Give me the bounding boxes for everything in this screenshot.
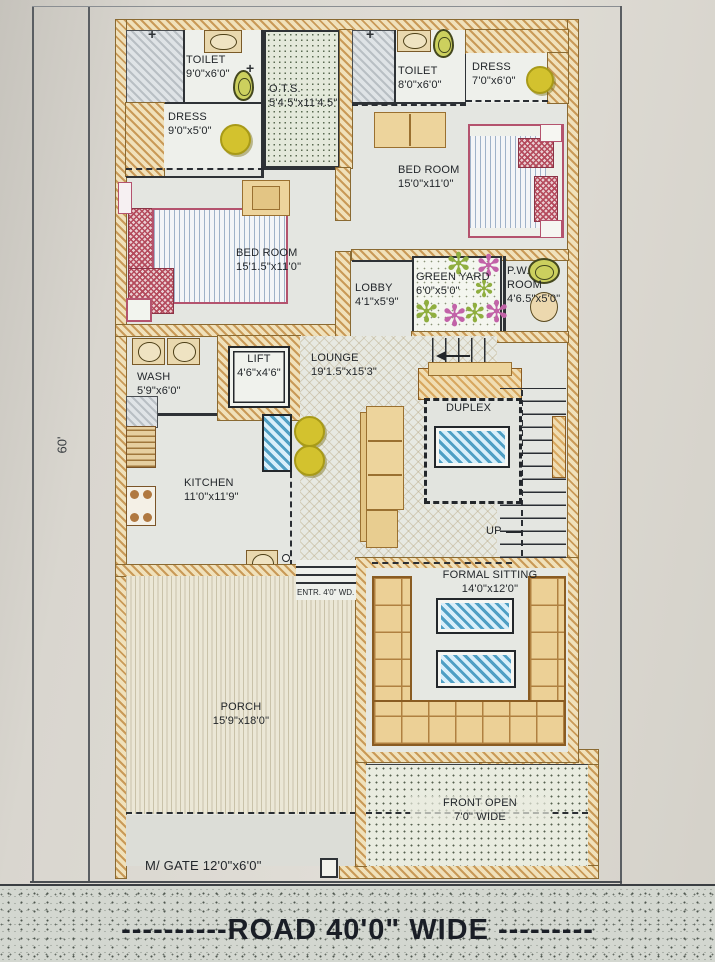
pw-room-label: P.W. ROOM 4'6.5"x5'0" bbox=[507, 264, 555, 306]
room-name: BED ROOM bbox=[398, 163, 460, 177]
ots-label: O.T.S. 5'4.5"x11'4.5" bbox=[269, 82, 337, 110]
washbasin-icon bbox=[397, 30, 431, 52]
bed-pillow bbox=[518, 138, 554, 168]
lift-label: LIFT 4'6"x4'6" bbox=[228, 352, 290, 380]
room-size: 8'0"x6'0" bbox=[398, 78, 442, 92]
room-size: 9'0"x5'0" bbox=[168, 124, 212, 138]
sofa-cushion-line bbox=[368, 474, 402, 476]
stool-icon bbox=[526, 66, 554, 94]
room-name: KITCHEN bbox=[184, 476, 239, 490]
sink-bowl bbox=[138, 342, 161, 362]
room-size: 19'1.5"x15'3" bbox=[311, 365, 377, 379]
room-size: 7'0"x6'0" bbox=[472, 74, 516, 88]
burner bbox=[130, 513, 139, 522]
room-name: FORMAL SITTING bbox=[420, 568, 560, 582]
plot-bottom-line bbox=[30, 881, 622, 883]
stool-icon bbox=[294, 416, 325, 447]
wall-top bbox=[116, 20, 578, 30]
dress-1-label: DRESS 9'0"x5'0" bbox=[168, 110, 212, 138]
burner bbox=[130, 490, 139, 499]
formal-sofa-left-arm bbox=[372, 576, 412, 716]
dresser-seat bbox=[252, 186, 280, 210]
entrance-step bbox=[296, 566, 356, 568]
room-name: BED ROOM bbox=[236, 246, 301, 260]
room-size: 6'0"x5'0" bbox=[416, 284, 490, 298]
formal-sitting-label: FORMAL SITTING 14'0"x12'0" bbox=[420, 568, 560, 596]
washbasin-bowl bbox=[403, 33, 427, 49]
room-size: 14'0"x12'0" bbox=[420, 582, 560, 596]
up-label: UP bbox=[486, 524, 502, 538]
bedside-table bbox=[540, 220, 562, 238]
wall-ots-right bbox=[340, 30, 352, 168]
wall-right-lower bbox=[588, 750, 598, 878]
page-right-line bbox=[620, 6, 622, 884]
cross-mark-icon: + bbox=[148, 26, 156, 42]
bedside-table bbox=[126, 298, 152, 322]
formal-sitting-opening bbox=[372, 562, 512, 564]
wall-bedrooms-upper bbox=[336, 168, 350, 220]
wash-label: WASH 5'9"x6'0" bbox=[137, 370, 181, 398]
gate-line-dashed bbox=[126, 812, 356, 814]
table-top bbox=[441, 655, 511, 683]
lobby-label: LOBBY 4'1"x5'9" bbox=[355, 281, 399, 309]
table-top bbox=[439, 431, 505, 463]
room-name: PORCH bbox=[186, 700, 296, 714]
duplex-label: DUPLEX bbox=[446, 401, 491, 415]
wall-dress1-left bbox=[126, 103, 164, 176]
cross-mark-icon: + bbox=[366, 26, 374, 42]
room-name: FRONT OPEN bbox=[410, 796, 550, 810]
bedside-table bbox=[540, 124, 562, 142]
fridge-icon bbox=[126, 426, 156, 468]
wardrobe-dashed-line bbox=[352, 104, 466, 106]
bed-pillow bbox=[534, 176, 558, 222]
wall-dress1-right bbox=[261, 103, 264, 176]
floor-plan: 60' + + TOILET 9'0"x6'0" O.T.S. 5'4.5"x1… bbox=[0, 0, 715, 960]
room-size: 4'6.5"x5'0" bbox=[507, 292, 555, 306]
room-size: 4'1"x5'9" bbox=[355, 295, 399, 309]
wash-sink-icon bbox=[132, 338, 165, 365]
room-size: 4'6"x4'6" bbox=[228, 366, 290, 380]
flower-icon: ✻ bbox=[484, 298, 509, 328]
room-name: DRESS bbox=[168, 110, 212, 124]
wall-lobby-top bbox=[352, 260, 412, 262]
wall-left bbox=[116, 20, 126, 878]
kitchen-counter-icon bbox=[126, 396, 158, 428]
room-name: TOILET bbox=[186, 53, 230, 67]
room-name: DUPLEX bbox=[446, 401, 491, 415]
center-table bbox=[436, 650, 516, 688]
room-name: TOILET bbox=[398, 64, 442, 78]
bedroom-1-label: BED ROOM 15'1.5"x11'0" bbox=[236, 246, 301, 274]
room-name: O.T.S. bbox=[269, 82, 337, 96]
room-name: LOBBY bbox=[355, 281, 399, 295]
sink-bowl bbox=[173, 342, 196, 362]
washbasin-bowl bbox=[210, 34, 236, 51]
plot-depth-dimension: 60' bbox=[55, 410, 70, 454]
wall-ots-bottom bbox=[264, 167, 342, 170]
kitchen-lounge-divider bbox=[290, 472, 292, 566]
wardrobe-dashed-line bbox=[466, 100, 548, 102]
wc-seat bbox=[438, 37, 451, 54]
entrance-step bbox=[296, 582, 356, 584]
room-size: 7'0" WIDE bbox=[410, 810, 550, 824]
room-size: 15'0"x11'0" bbox=[398, 177, 460, 191]
burner bbox=[143, 513, 152, 522]
main-gate-label: M/ GATE 12'0"x6'0" bbox=[145, 858, 262, 875]
sofa-divider bbox=[409, 114, 411, 146]
stair-landing-block bbox=[552, 416, 566, 478]
room-size: 15'1.5"x11'0" bbox=[236, 260, 301, 274]
wardrobe-dashed-line bbox=[126, 168, 264, 170]
lounge-sofa-seat bbox=[366, 510, 398, 548]
wall-porch-right bbox=[356, 762, 366, 866]
road-label: ----------ROAD 40'0" WIDE --------- bbox=[0, 914, 715, 947]
flower-icon: ✻ bbox=[414, 298, 439, 328]
toilet-1-label: TOILET 9'0"x6'0" bbox=[186, 53, 230, 81]
room-size: 15'9"x18'0" bbox=[186, 714, 296, 728]
room-name: GREEN YARD bbox=[416, 270, 490, 284]
flower-icon: ✻ bbox=[464, 300, 486, 326]
bedroom-2-label: BED ROOM 15'0"x11'0" bbox=[398, 163, 460, 191]
cross-mark-icon: + bbox=[246, 60, 254, 76]
stool-icon bbox=[294, 445, 325, 476]
wall-dress1-bottom bbox=[126, 176, 264, 178]
formal-sofa-right-arm bbox=[528, 576, 566, 716]
kitchen-label: KITCHEN 11'0"x11'9" bbox=[184, 476, 239, 504]
entrance-label: ENTR. 4'0" WD. bbox=[297, 588, 354, 598]
center-table bbox=[436, 598, 514, 634]
porch-label: PORCH 15'9"x18'0" bbox=[186, 700, 296, 728]
wall-bedrooms-lower bbox=[336, 252, 350, 336]
room-size: 5'4.5"x11'4.5" bbox=[269, 96, 337, 110]
wc-seat bbox=[238, 78, 251, 96]
room-name: LIFT bbox=[228, 352, 290, 366]
green-yard-label: GREEN YARD 6'0"x5'0" bbox=[416, 270, 490, 298]
table-top bbox=[441, 603, 509, 629]
dimension-line-left bbox=[88, 6, 90, 882]
stair-direction-arrow bbox=[440, 355, 470, 357]
room-name: WASH bbox=[137, 370, 181, 384]
formal-sofa-bottom bbox=[372, 700, 566, 746]
hob-ring bbox=[282, 554, 290, 562]
wall-bottom bbox=[340, 866, 598, 878]
sofa-cushion-line bbox=[368, 440, 402, 442]
washbasin-icon bbox=[204, 30, 242, 53]
stove-icon bbox=[126, 486, 156, 526]
dress-2-label: DRESS 7'0"x6'0" bbox=[472, 60, 516, 88]
page-top-line bbox=[32, 6, 621, 7]
breakfast-counter bbox=[262, 414, 292, 472]
wall-closet-toilet2 bbox=[394, 30, 396, 103]
lounge-sofa bbox=[366, 406, 404, 510]
room-name: P.W. ROOM bbox=[507, 264, 555, 292]
duplex-sofa-back bbox=[428, 362, 512, 376]
center-table bbox=[434, 426, 510, 468]
window-marker bbox=[118, 182, 132, 214]
front-open-label: FRONT OPEN 7'0" WIDE bbox=[410, 796, 550, 824]
room-name: DRESS bbox=[472, 60, 516, 74]
wall-bedroom1-bottom bbox=[116, 325, 336, 336]
toilet-2-label: TOILET 8'0"x6'0" bbox=[398, 64, 442, 92]
wall-kitchen-bottom bbox=[116, 565, 296, 576]
porch-floor bbox=[126, 576, 356, 814]
toilet-wc-icon bbox=[433, 29, 454, 58]
lounge-label: LOUNGE 19'1.5"x15'3" bbox=[311, 351, 377, 379]
room-size: 11'0"x11'9" bbox=[184, 490, 239, 504]
room-size: 9'0"x6'0" bbox=[186, 67, 230, 81]
up-pointer-line bbox=[506, 531, 522, 533]
wall-dress2-top bbox=[466, 30, 568, 53]
wall-closet-toilet1 bbox=[183, 30, 185, 103]
stool-icon bbox=[220, 124, 251, 155]
room-name: LOUNGE bbox=[311, 351, 377, 365]
room-size: 5'9"x6'0" bbox=[137, 384, 181, 398]
plot-boundary-line-left bbox=[32, 6, 34, 882]
burner bbox=[143, 490, 152, 499]
gate-post bbox=[320, 858, 338, 878]
entrance-step bbox=[296, 574, 356, 576]
wash-sink-icon bbox=[167, 338, 200, 365]
